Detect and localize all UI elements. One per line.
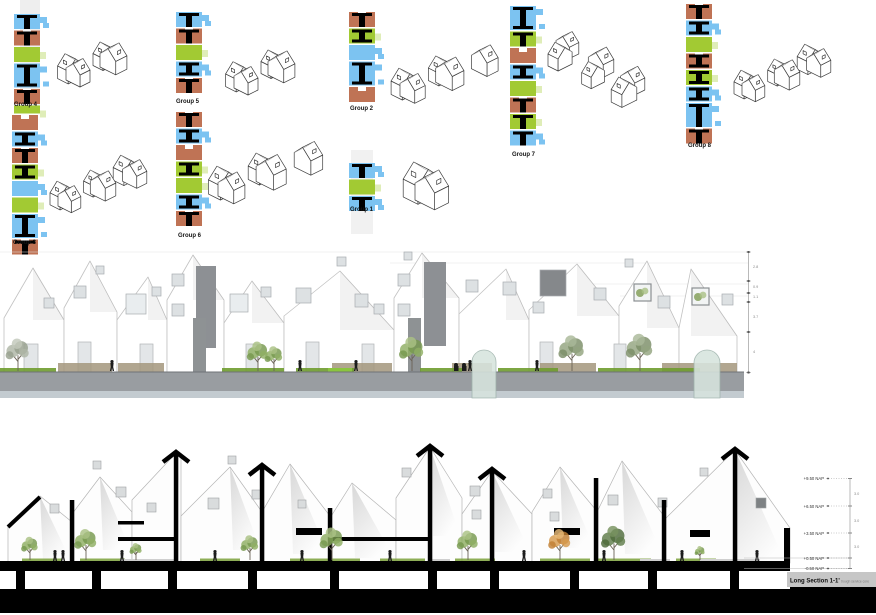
group-group-5 bbox=[176, 12, 295, 95]
street-elevation-layer bbox=[0, 251, 751, 398]
interval-label: 3.0 bbox=[854, 519, 859, 523]
plan-strip bbox=[349, 163, 384, 211]
interval-label: 3.0 bbox=[854, 545, 859, 549]
group-group-1 bbox=[349, 162, 449, 211]
group-group-3 bbox=[12, 115, 147, 255]
group-group-8 bbox=[686, 4, 831, 144]
plan-strip bbox=[176, 112, 211, 226]
plan-strip bbox=[176, 12, 211, 93]
isometric-houses bbox=[209, 141, 323, 203]
isometric-houses bbox=[226, 50, 295, 95]
isometric-houses bbox=[403, 162, 448, 210]
plan-strip bbox=[349, 12, 384, 102]
level-label: -0.50 NAP bbox=[805, 566, 825, 571]
isometric-houses bbox=[58, 42, 127, 87]
group-label: Group 4 bbox=[14, 102, 38, 108]
isometric-houses bbox=[50, 155, 147, 213]
group-label: Group 2 bbox=[350, 106, 374, 112]
plan-strip bbox=[686, 4, 721, 144]
dim-label: 1.1 bbox=[753, 295, 758, 299]
group-label: Group 1 bbox=[350, 207, 374, 213]
plan-strip bbox=[12, 115, 47, 255]
level-label: +0.50 NAP bbox=[804, 556, 825, 561]
group-label: Group 8 bbox=[688, 143, 712, 149]
massing-groups-layer bbox=[12, 0, 831, 255]
long-section-layer bbox=[0, 446, 876, 613]
sheet-drawing: Group 4 Group 5 Group 2 Group 7 Group 8 … bbox=[0, 0, 876, 615]
level-label: +6.50 NAP bbox=[804, 504, 825, 509]
group-group-6 bbox=[176, 112, 323, 226]
interval-label: 3.0 bbox=[854, 492, 859, 496]
isometric-houses bbox=[734, 44, 831, 101]
level-label: +3.50 NAP bbox=[804, 531, 825, 536]
dim-label: 2.8 bbox=[753, 265, 758, 269]
isometric-houses bbox=[391, 45, 498, 104]
dim-label: 3.7 bbox=[753, 315, 758, 319]
group-label: Group 5 bbox=[176, 99, 200, 105]
presentation-sheet: Group 4 Group 5 Group 2 Group 7 Group 8 … bbox=[0, 0, 876, 615]
isometric-houses bbox=[548, 32, 645, 108]
group-label: Group 3 bbox=[13, 240, 37, 246]
dim-label: 4 bbox=[753, 350, 755, 354]
level-label: +9.50 NAP bbox=[804, 476, 825, 481]
dim-label: 0.9 bbox=[753, 285, 758, 289]
group-group-2 bbox=[349, 12, 498, 103]
group-label: Group 7 bbox=[512, 152, 536, 158]
plan-strip bbox=[510, 6, 545, 146]
group-label: Group 6 bbox=[178, 233, 202, 239]
section-subtitle: trough service core bbox=[841, 580, 869, 584]
group-group-7 bbox=[510, 6, 645, 146]
section-title: Long Section 1-1' bbox=[790, 579, 840, 585]
